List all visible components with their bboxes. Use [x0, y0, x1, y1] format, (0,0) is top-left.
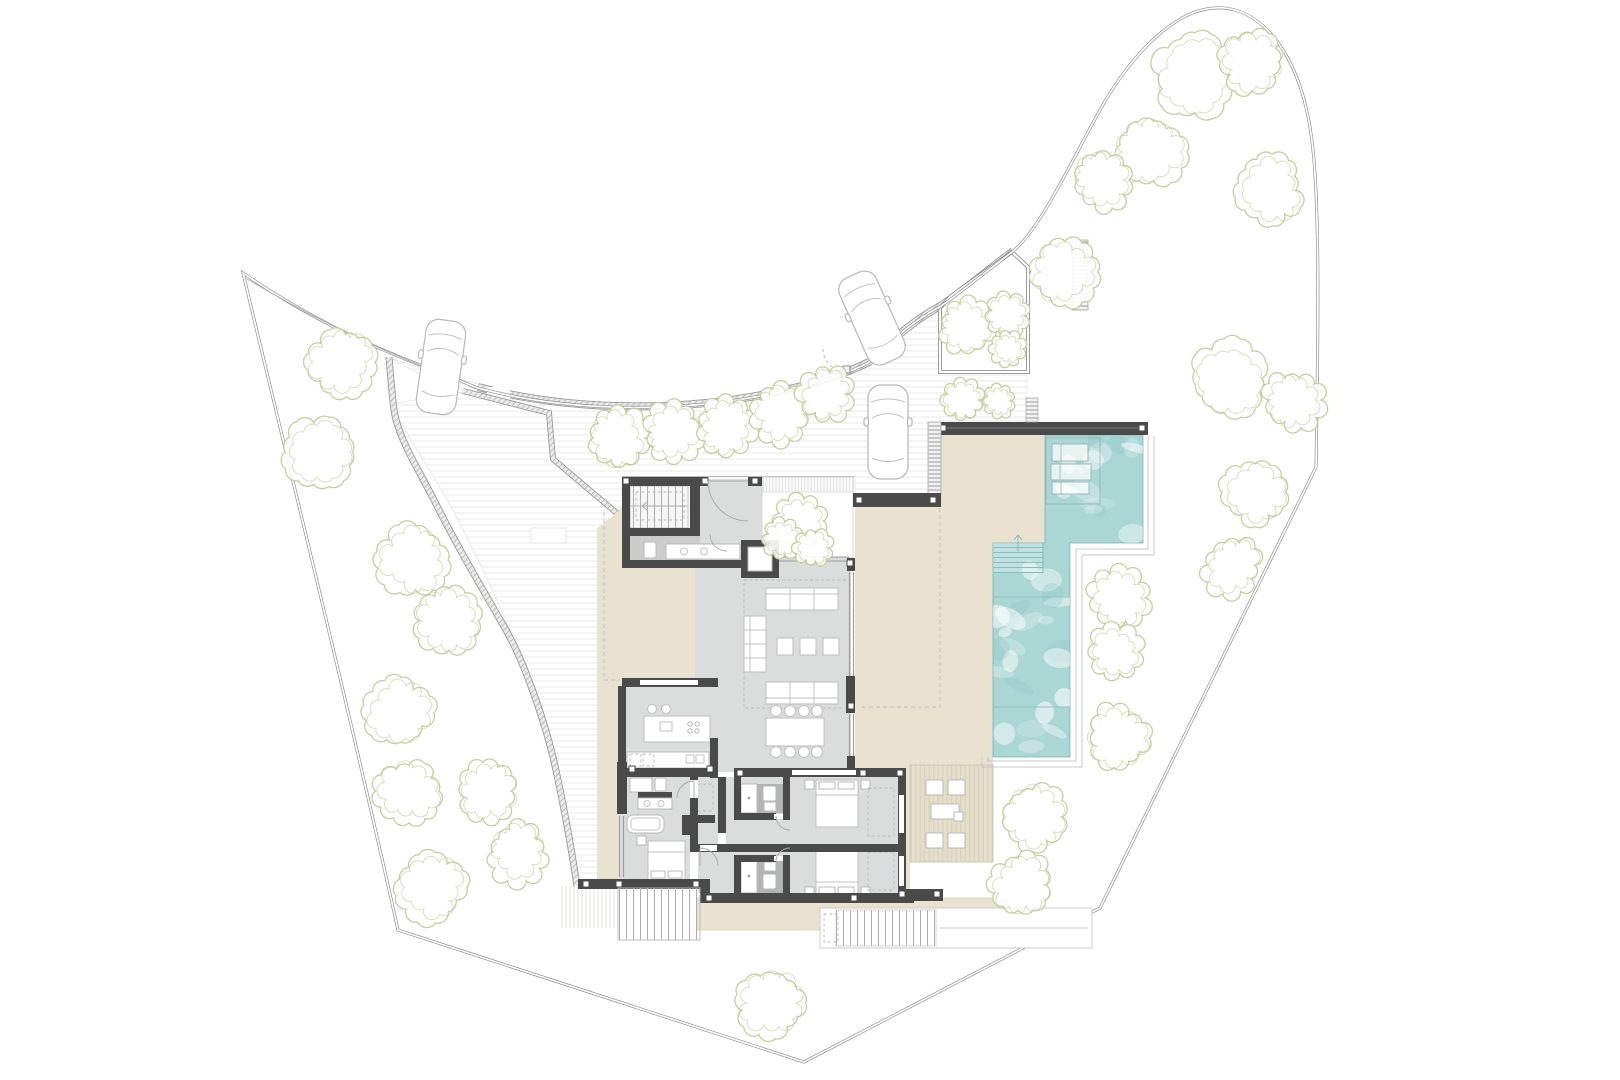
tree [1200, 538, 1263, 602]
sofa [766, 588, 838, 610]
site-plan-canvas [0, 0, 1620, 1080]
tree [1218, 461, 1288, 528]
pillow [819, 782, 835, 789]
bar-stool [662, 705, 671, 714]
exterior-stairs-west [618, 888, 700, 940]
vanity-counter [666, 544, 740, 559]
pergola-louvers [762, 477, 853, 492]
tree [361, 674, 437, 743]
terrace-wall [853, 493, 941, 507]
coffee-table [800, 638, 816, 655]
room-corridor [698, 777, 718, 849]
coffee-table [777, 638, 793, 655]
tree [393, 849, 469, 927]
dining-chair [771, 706, 782, 717]
pillow [838, 887, 854, 894]
chaise [744, 616, 766, 672]
tree [1087, 702, 1152, 770]
interior-staircase [630, 486, 688, 528]
toilet [763, 786, 776, 801]
pool-lounger [1052, 444, 1088, 461]
pillow [651, 871, 665, 878]
tree [413, 585, 482, 655]
tree [986, 850, 1050, 914]
dining-table [766, 718, 824, 746]
site-plan-page [0, 0, 1620, 1080]
dining-set [766, 706, 824, 758]
dining-chair [799, 747, 810, 758]
sink [764, 802, 776, 811]
dining-chair [785, 747, 796, 758]
vanity [630, 778, 652, 792]
toilet [655, 778, 666, 791]
tree [1075, 151, 1133, 215]
tree [373, 521, 451, 595]
step-strip [1026, 398, 1038, 422]
tree [1217, 28, 1283, 96]
dining-chair [812, 706, 823, 717]
dining-chair [812, 747, 823, 758]
tree [487, 819, 549, 890]
double-sink-counter [638, 798, 672, 809]
partition-wall [638, 792, 672, 798]
tree [1086, 563, 1152, 627]
nightstand [637, 836, 646, 845]
bathroom-3 [741, 860, 783, 893]
tree [982, 383, 1014, 419]
dining-chair [799, 706, 810, 717]
sofa [766, 682, 838, 704]
exterior-stairs-south [820, 908, 1092, 948]
tree [1029, 237, 1100, 309]
pillow [819, 887, 835, 894]
tree [1088, 621, 1145, 680]
deck-chair [948, 833, 965, 848]
paving-marking [531, 528, 566, 543]
deck-side-table [954, 812, 963, 821]
dining-chair [771, 747, 782, 758]
nightstand [805, 780, 814, 789]
tree [459, 759, 516, 826]
coffee-table [823, 638, 839, 655]
bathroom-2 [741, 784, 783, 813]
tree [1233, 152, 1304, 227]
pillow [668, 871, 682, 878]
pool-lounger [1052, 482, 1089, 494]
sink [764, 862, 776, 871]
deck-chair [948, 780, 965, 795]
deck-chair [926, 833, 943, 848]
deck-chair [926, 780, 943, 795]
car [864, 385, 912, 479]
tree [1003, 783, 1068, 854]
pillow [838, 782, 854, 789]
tree [372, 760, 442, 827]
pool-lounger [1051, 464, 1091, 480]
tree [735, 971, 807, 1042]
kitchen-island [644, 716, 710, 742]
car [831, 265, 913, 370]
ramp-end-hatch [560, 886, 618, 928]
tree [281, 416, 354, 489]
tree [1192, 335, 1268, 419]
dining-chair [785, 706, 796, 717]
step-strip [928, 422, 941, 494]
toilet [763, 874, 776, 889]
tree [304, 328, 378, 400]
wall-pip [1139, 425, 1145, 431]
toilet [644, 542, 656, 558]
bar-stool [648, 705, 657, 714]
